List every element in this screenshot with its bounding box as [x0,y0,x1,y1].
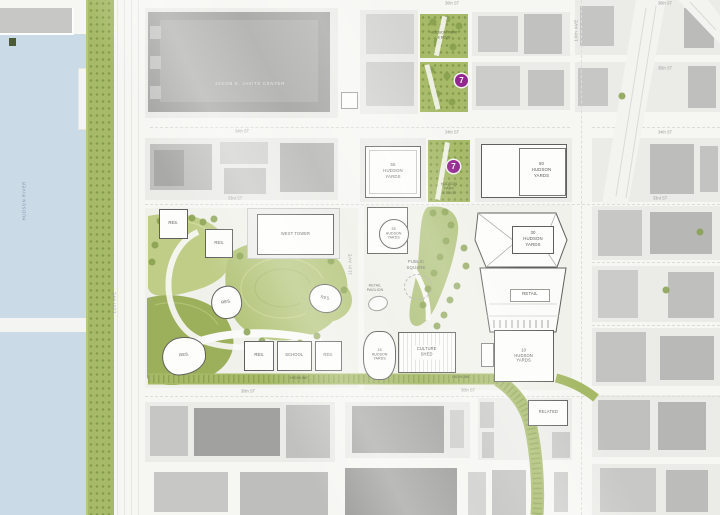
street-label-36th-mid: 36th ST [438,2,465,6]
hy10-label: 10 HUDSON YARDS [515,348,533,363]
building-west-tower: WEST TOWER [257,214,334,255]
west-tower-label: WEST TOWER [281,232,310,237]
lincoln-tunnel-ramps [602,0,720,204]
street-label-34th-west: 34th ST [228,130,255,134]
related-label: RELATED [538,410,557,415]
street-label-30th-west: 30th ST [234,390,261,394]
street-label-30th-mid: 30th ST [454,389,481,393]
hudson-river-label: HUDSON RIVER [23,163,27,220]
highline-label-east: HIGHLINE [450,375,471,380]
res-label: RES. [323,353,333,358]
retail-label: RETAIL [516,290,545,300]
station-entrance-structure [341,92,358,109]
street-label-34th-east: 34th ST [651,131,678,135]
street-label-33rd-west: 33rd ST [221,197,248,201]
building-residential: RES. [315,341,342,371]
res-label: RES. [221,299,232,306]
building-residential: RES. [244,341,274,371]
hy10-annex [481,343,494,367]
public-square-sketch [404,274,432,300]
building-residential: RES. [159,209,188,239]
res-label: RES. [179,353,189,359]
res-label: RES. [320,295,331,302]
retail-pavilion-label: RETAIL PAVILION [365,284,385,293]
building-10-hudson-yards: 10 HUDSON YARDS [494,330,554,382]
building-residential: RES. [205,229,233,258]
hudson-park-blvd-label-top: HUDSON PARK & BLVD [429,31,459,40]
hy30-label: 30 HUDSON YARDS [518,230,548,250]
high-line [148,378,596,515]
javits-center-label: JACOB K. JAVITS CENTER [192,81,307,88]
culture-shed-label: CULTURE SHED [413,345,441,359]
res-label: RES. [214,241,224,246]
building-culture-shed: CULTURE SHED [398,332,456,373]
school-label: SCHOOL [285,353,303,358]
res-label: RES. [254,353,264,358]
res-label: RES. [168,221,178,226]
hy35-label: 35 HUDSON YARDS [386,227,402,240]
site-plan-map: HUDSON RIVER JACOB K. JAVITS CENTER HUDS… [0,0,720,515]
building-school: SCHOOL [277,341,312,371]
building-35-hudson-yards: 35 HUDSON YARDS [379,219,409,249]
hudson-park-blvd-label-south: HUDSON PARK & BLVD [436,182,462,196]
building-label-50-hudson-yards: 50 HUDSON YARDS [525,154,557,187]
avenue-label-11th: 11th AVE [349,253,353,275]
street-label-36th-east: 36th ST [651,2,678,6]
subway-7-marker-south: 7 [447,160,460,173]
street-label-35th-east: 35th ST [651,67,678,71]
building-related: RELATED [528,400,568,426]
subway-line-number: 7 [459,76,463,85]
street-label-34th-mid: 34th ST [438,131,465,135]
subway-line-number: 7 [451,162,455,171]
street-label-33rd-east: 33rd ST [646,197,673,201]
public-square-label: PUBLIC SQUARE [403,260,429,271]
building-15-hudson-yards: 15 HUDSON YARDS [363,331,396,380]
building-label-55-hudson-yards: 55 HUDSON YARDS [373,153,413,190]
subway-7-marker-north: 7 [455,74,468,87]
avenue-label-12th: 12th AVE [113,291,117,313]
highline-label-west: HIGHLINE [288,376,309,381]
avenue-label-10th: 10th AVE [575,19,579,41]
landscape-layer [0,0,720,515]
hy15-label: 15 HUDSON YARDS [372,349,388,362]
